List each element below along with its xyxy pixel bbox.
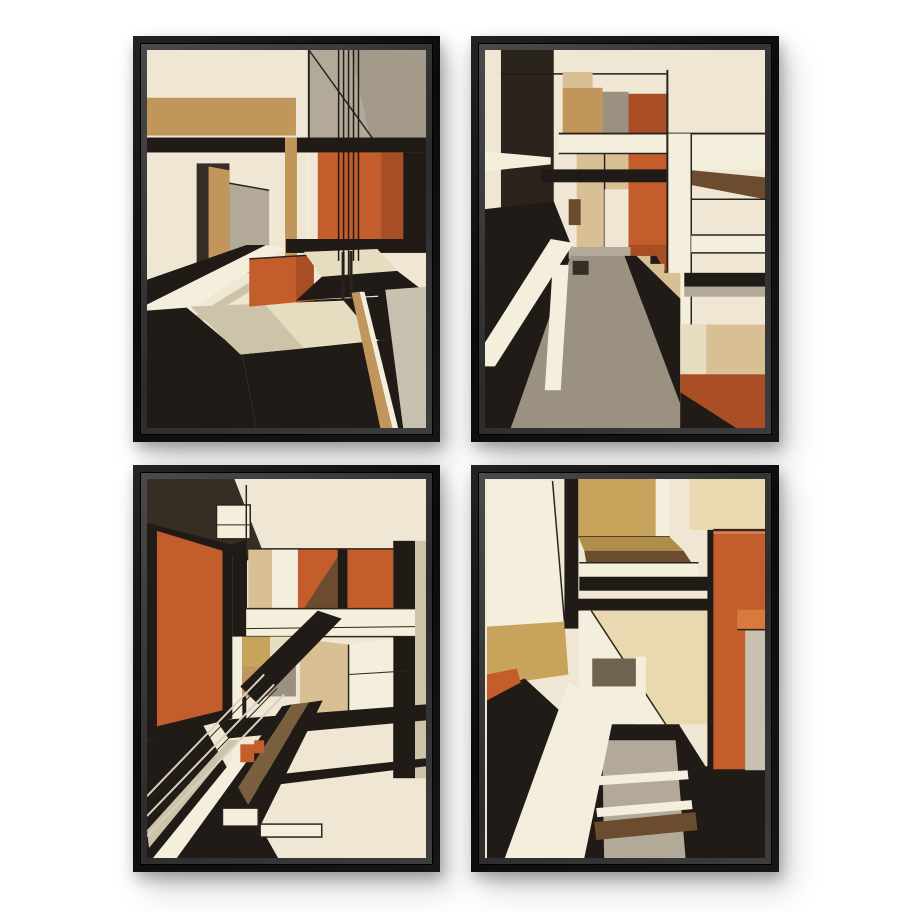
artwork-bottom-left [147, 479, 426, 858]
frame-bevel [478, 472, 772, 865]
artwork-canvas-bottom-right [485, 479, 765, 858]
framed-print-bottom-right [471, 465, 779, 872]
artwork-top-right [485, 50, 765, 428]
frame-bevel [478, 43, 772, 435]
frame-bevel [140, 472, 433, 865]
artwork-bottom-right [485, 479, 765, 858]
artwork-canvas-top-right [485, 50, 765, 428]
framed-print-top-right [471, 36, 779, 442]
artwork-canvas-top-left [147, 50, 426, 428]
artwork-canvas-bottom-left [147, 479, 426, 858]
framed-print-bottom-left [133, 465, 440, 872]
framed-print-top-left [133, 36, 440, 442]
gallery-wall [0, 0, 912, 912]
frame-bevel [140, 43, 433, 435]
artwork-top-left [147, 50, 426, 428]
